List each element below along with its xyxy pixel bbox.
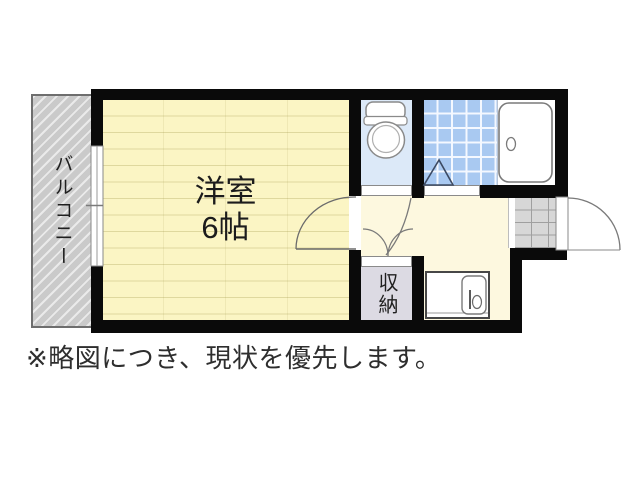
floor-plan: バルコニー 洋室 6帖 収納 — [0, 0, 640, 480]
wall-bath-bottom — [480, 185, 568, 198]
entrance-step-edge — [508, 198, 515, 248]
bathtub-area — [497, 100, 555, 185]
balcony-label: バルコニー — [49, 154, 76, 269]
bathroom-tile-area — [424, 100, 497, 185]
balcony-area: バルコニー — [31, 94, 91, 328]
wall-middle-upper — [349, 89, 361, 196]
main-room-size: 6帖 — [201, 210, 249, 246]
wall-bottom — [91, 320, 522, 333]
toilet-room-area — [361, 100, 412, 185]
wall-left-upper — [91, 89, 103, 147]
bath-door-sill — [424, 185, 480, 196]
wall-kitchen-right — [510, 248, 522, 333]
entrance-tile-area — [515, 198, 567, 248]
wall-storage-right — [412, 256, 424, 333]
wall-middle-lower — [349, 250, 361, 333]
storage-door-sill — [361, 256, 412, 267]
main-room-area: 洋室 6帖 — [102, 100, 349, 320]
room-door-opening — [349, 196, 361, 250]
storage-label: 収納 — [372, 272, 401, 316]
entrance-door-arc — [568, 198, 620, 250]
storage-room-area: 収納 — [361, 267, 412, 320]
toilet-door-sill — [361, 185, 412, 196]
wall-toilet-bath-divider — [412, 89, 424, 198]
plan-note: ※略図につき、現状を優先します。 — [26, 338, 616, 375]
wall-top — [91, 89, 568, 100]
wall-right-upper — [555, 89, 568, 198]
main-room-name: 洋室 — [195, 174, 257, 210]
